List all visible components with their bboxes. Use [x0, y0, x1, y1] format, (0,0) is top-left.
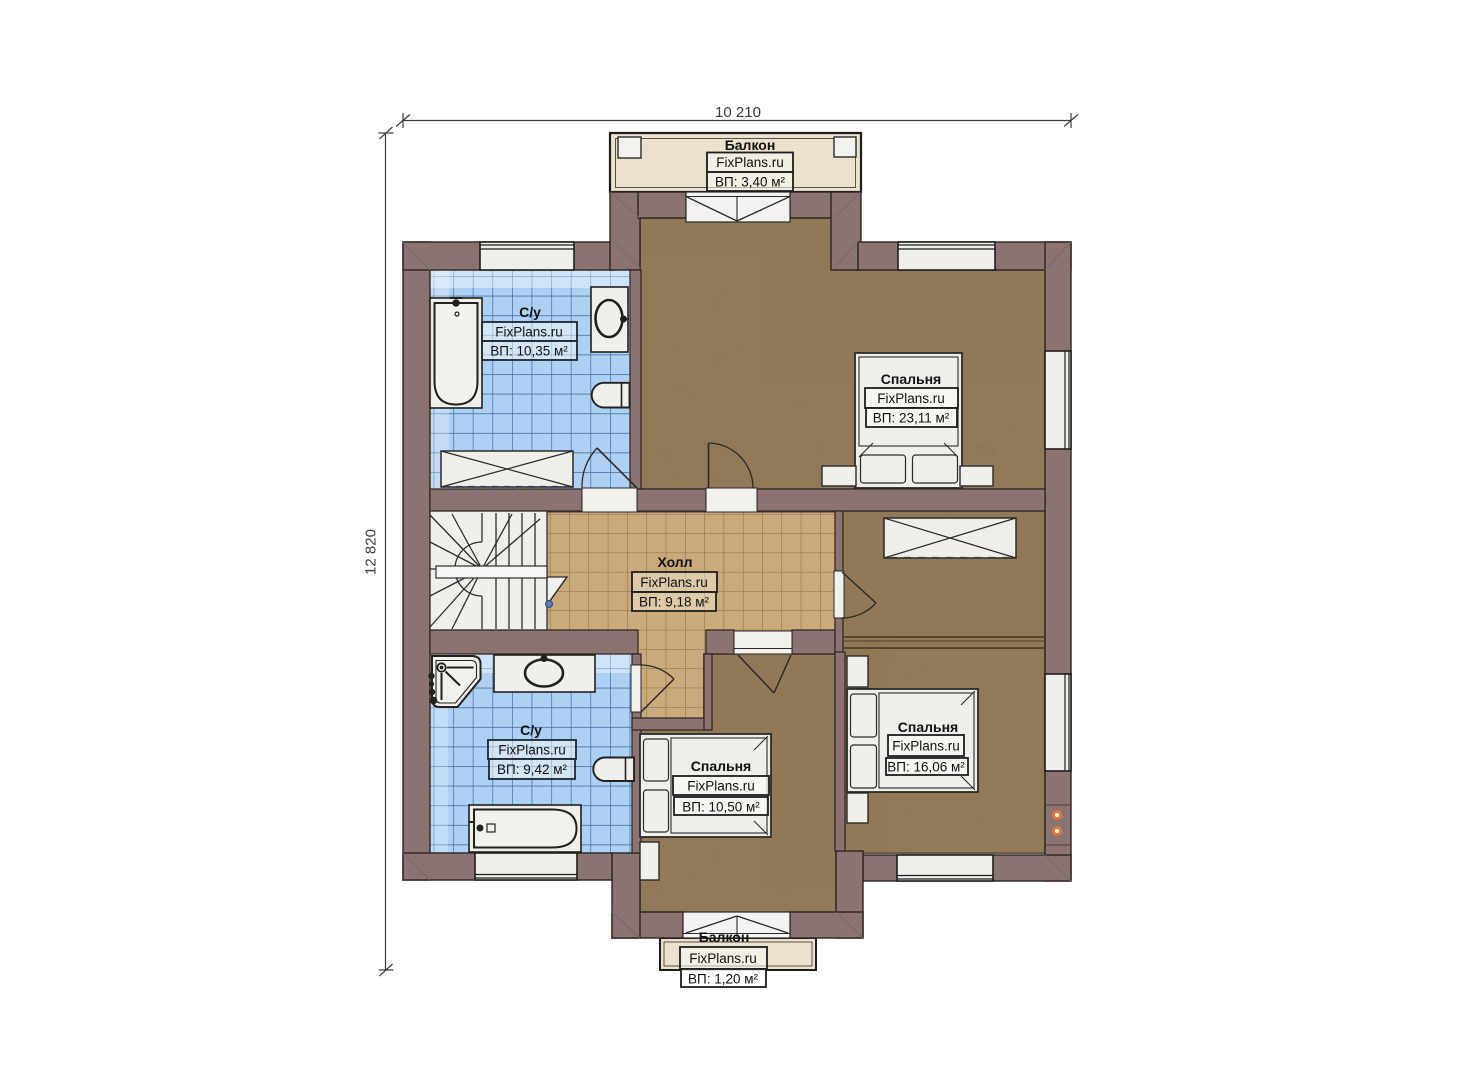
svg-text:ВП: 9,42 м²: ВП: 9,42 м² — [497, 762, 568, 777]
svg-text:Спальня: Спальня — [881, 371, 941, 387]
svg-text:FixPlans.ru: FixPlans.ru — [892, 739, 960, 754]
svg-text:FixPlans.ru: FixPlans.ru — [689, 951, 757, 966]
svg-text:FixPlans.ru: FixPlans.ru — [687, 779, 755, 794]
svg-text:ВП: 16,06 м²: ВП: 16,06 м² — [887, 760, 965, 775]
svg-text:ВП: 9,18 м²: ВП: 9,18 м² — [639, 595, 710, 610]
svg-text:ВП: 23,11 м²: ВП: 23,11 м² — [873, 411, 950, 426]
svg-text:С/у: С/у — [519, 304, 541, 320]
svg-text:Спальня: Спальня — [691, 758, 751, 774]
svg-text:Балкон: Балкон — [725, 137, 776, 153]
svg-text:FixPlans.ru: FixPlans.ru — [640, 575, 708, 590]
svg-text:FixPlans.ru: FixPlans.ru — [716, 155, 784, 170]
svg-text:Спальня: Спальня — [898, 719, 958, 735]
svg-text:FixPlans.ru: FixPlans.ru — [877, 391, 945, 406]
svg-text:ВП: 10,50 м²: ВП: 10,50 м² — [682, 800, 760, 815]
svg-text:С/у: С/у — [520, 722, 542, 738]
svg-text:Холл: Холл — [657, 554, 692, 570]
svg-text:12 820: 12 820 — [363, 529, 380, 575]
svg-text:ВП: 3,40 м²: ВП: 3,40 м² — [715, 175, 786, 190]
svg-text:Балкон: Балкон — [699, 929, 750, 945]
svg-text:FixPlans.ru: FixPlans.ru — [498, 743, 566, 758]
svg-text:10 210: 10 210 — [715, 104, 761, 121]
svg-text:ВП: 10,35 м²: ВП: 10,35 м² — [490, 344, 568, 359]
svg-text:FixPlans.ru: FixPlans.ru — [495, 325, 563, 340]
svg-text:ВП: 1,20 м²: ВП: 1,20 м² — [688, 972, 759, 987]
